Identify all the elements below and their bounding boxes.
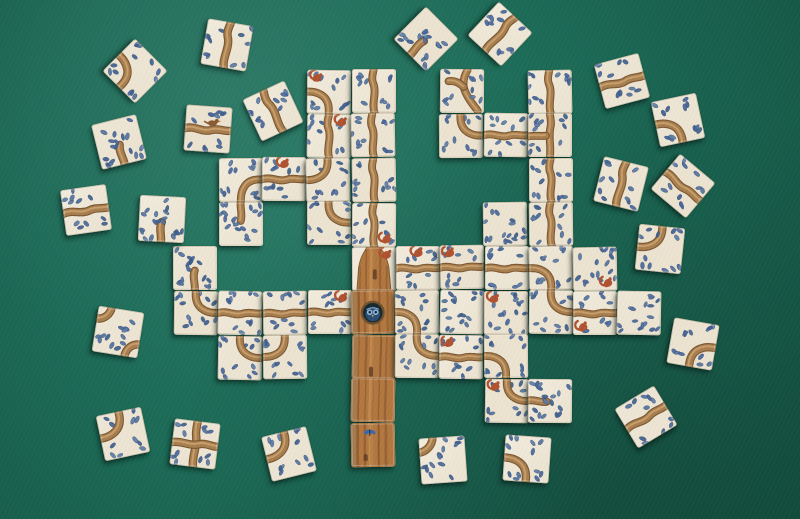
- branch-art: [92, 306, 145, 359]
- branch-art: [183, 107, 232, 153]
- tile-trunk-top[interactable]: [352, 247, 396, 291]
- tile-horizontal-branch[interactable]: [614, 385, 677, 448]
- tile-trunk-butterfly[interactable]: [350, 422, 394, 466]
- branch-art: [351, 113, 395, 157]
- tile-curve-top-right[interactable]: [485, 379, 529, 423]
- tile-leaves-only[interactable]: [573, 246, 617, 290]
- tile-vertical-branch[interactable]: [351, 113, 395, 157]
- tile-horizontal-branch[interactable]: [484, 113, 528, 157]
- branch-art: [617, 293, 661, 335]
- tile-vertical-branch[interactable]: [200, 18, 253, 71]
- branch-art: [393, 13, 451, 71]
- tile-horizontal-branch[interactable]: [183, 104, 232, 153]
- branch-art: [263, 335, 306, 379]
- tile-vertical-branch[interactable]: [529, 158, 573, 202]
- tile-vertical-branch[interactable]: [352, 202, 396, 246]
- branch-art: [635, 224, 686, 275]
- tile-branch-end-right[interactable]: [528, 379, 572, 423]
- tile-vertical-branch[interactable]: [593, 156, 649, 212]
- branch-art: [174, 291, 218, 329]
- tile-branch-tee-left[interactable]: [528, 113, 572, 157]
- owl-icon: [362, 302, 384, 324]
- tile-horizontal-branch[interactable]: [396, 246, 440, 290]
- tile-trunk[interactable]: [352, 334, 396, 378]
- tile-vertical-branch[interactable]: [527, 69, 571, 113]
- tile-curve-top-right[interactable]: [529, 290, 573, 334]
- tile-curve-top-right[interactable]: [307, 201, 351, 245]
- tile-curve-top-left[interactable]: [261, 426, 317, 482]
- branch-art: [242, 80, 302, 141]
- tile-horizontal-branch[interactable]: [594, 53, 650, 109]
- tile-leaves-only[interactable]: [617, 291, 661, 335]
- branch-art: [439, 335, 483, 379]
- tile-curve-bottom-left[interactable]: [483, 334, 527, 378]
- tile-horizontal-branch[interactable]: [651, 154, 716, 219]
- branch-art: [398, 334, 439, 376]
- branch-art: [138, 196, 186, 243]
- tile-vertical-branch[interactable]: [529, 202, 573, 246]
- tile-vertical-branch[interactable]: [352, 69, 396, 113]
- leaves: [104, 46, 160, 102]
- trunk-art: [351, 378, 395, 422]
- tile-branch-end-bottom[interactable]: [173, 246, 217, 290]
- tile-curve-top-left[interactable]: [96, 407, 151, 462]
- branch-art: [60, 184, 112, 232]
- squirrel-icon: [335, 291, 347, 302]
- tile-curve-bottom-right[interactable]: [666, 317, 719, 370]
- leaves: [95, 122, 139, 167]
- tile-curve-top-right[interactable]: [439, 114, 483, 158]
- tile-curve-bottom-left[interactable]: [528, 246, 572, 290]
- branch-art: [306, 157, 350, 200]
- tile-branch-end-bottom[interactable]: [138, 195, 186, 243]
- tile-curve-top-left[interactable]: [635, 224, 686, 275]
- leaves: [418, 435, 466, 482]
- branch-art: [594, 53, 650, 105]
- branch-art: [527, 69, 571, 113]
- tile-branch-end-bottom[interactable]: [393, 6, 458, 71]
- branch-art: [485, 246, 529, 290]
- branch-art: [529, 290, 573, 334]
- branch-art: [484, 115, 528, 157]
- branch-art: [351, 157, 395, 201]
- branch-art: [614, 385, 677, 448]
- branch-art: [440, 290, 483, 334]
- tile-corner-arc[interactable]: [418, 435, 467, 484]
- branch-art: [418, 435, 466, 483]
- tile-vertical-branch[interactable]: [351, 157, 395, 201]
- branch-art: [219, 202, 263, 242]
- tile-horizontal-branch[interactable]: [485, 246, 529, 290]
- branch-art: [483, 202, 527, 245]
- tile-horizontal-branch[interactable]: [439, 245, 483, 289]
- branch-art: [442, 68, 484, 110]
- branch-art: [528, 246, 572, 290]
- tile-horizontal-branch[interactable]: [263, 290, 307, 334]
- leaves: [104, 39, 166, 101]
- branch-art: [218, 335, 262, 379]
- tile-horizontal-branch[interactable]: [217, 290, 261, 334]
- branch-art: [174, 246, 212, 289]
- squirrel-icon: [487, 380, 499, 391]
- branch-art: [442, 114, 483, 157]
- branch-art: [263, 290, 307, 333]
- branch-art: [355, 69, 393, 113]
- tile-double-corner-curves[interactable]: [92, 306, 145, 359]
- tile-horizontal-branch[interactable]: [308, 290, 352, 334]
- branch-art: [467, 1, 532, 66]
- table-surface: [0, 0, 800, 519]
- branch-art: [502, 434, 546, 483]
- branch-art: [219, 158, 263, 201]
- tile-curve-bottom-left[interactable]: [395, 290, 439, 334]
- branch-art: [169, 418, 220, 469]
- tile-branch-cross[interactable]: [169, 418, 220, 469]
- branch-art: [102, 38, 167, 103]
- tile-curve-top-left[interactable]: [306, 157, 350, 201]
- tile-branch-fork[interactable]: [440, 68, 484, 112]
- tile-vertical-branch[interactable]: [307, 113, 351, 157]
- trunk-art: [352, 334, 396, 378]
- leaves: [440, 290, 478, 334]
- tile-horizontal-branch[interactable]: [60, 184, 112, 236]
- branch-art: [439, 245, 483, 289]
- leaves: [617, 294, 661, 334]
- tile-horizontal-branch[interactable]: [262, 157, 306, 201]
- tile-vertical-branch[interactable]: [467, 1, 532, 66]
- branch-art: [483, 334, 526, 378]
- branch-art: [528, 380, 572, 422]
- tile-leaves-only[interactable]: [484, 290, 528, 334]
- tile-curve-bottom-left[interactable]: [651, 93, 706, 148]
- tile-curve-right-bottom[interactable]: [218, 157, 262, 201]
- branch-art: [530, 158, 572, 202]
- branch-art: [217, 290, 261, 334]
- tile-branch-end-bottom[interactable]: [91, 114, 147, 170]
- branch-art: [652, 154, 715, 216]
- leaves: [267, 426, 315, 477]
- branch-art: [395, 292, 431, 333]
- tile-curve-bottom-left[interactable]: [502, 434, 551, 483]
- tile-horizontal-branch[interactable]: [439, 335, 483, 379]
- tile-curve-bottom-left[interactable]: [102, 38, 167, 103]
- tile-curve-bottom-left[interactable]: [307, 69, 351, 113]
- branch-art: [307, 201, 351, 245]
- tile-curve-top-right[interactable]: [174, 291, 218, 335]
- branch-art: [530, 202, 572, 246]
- tile-trunk[interactable]: [351, 378, 395, 422]
- branch-art: [528, 113, 568, 157]
- tile-branch-end-top[interactable]: [219, 202, 263, 246]
- tile-curve-top-right[interactable]: [394, 334, 438, 378]
- tile-leaves-only[interactable]: [483, 202, 527, 246]
- tile-leaves-only[interactable]: [439, 290, 483, 334]
- tile-trunk-owl-hollow[interactable]: [351, 290, 395, 334]
- tile-curve-top-right[interactable]: [218, 335, 262, 379]
- tile-horizontal-branch[interactable]: [573, 291, 617, 335]
- tile-vertical-branch[interactable]: [242, 80, 303, 141]
- tile-curve-top-left[interactable]: [263, 335, 307, 379]
- trunk-art: [350, 422, 394, 466]
